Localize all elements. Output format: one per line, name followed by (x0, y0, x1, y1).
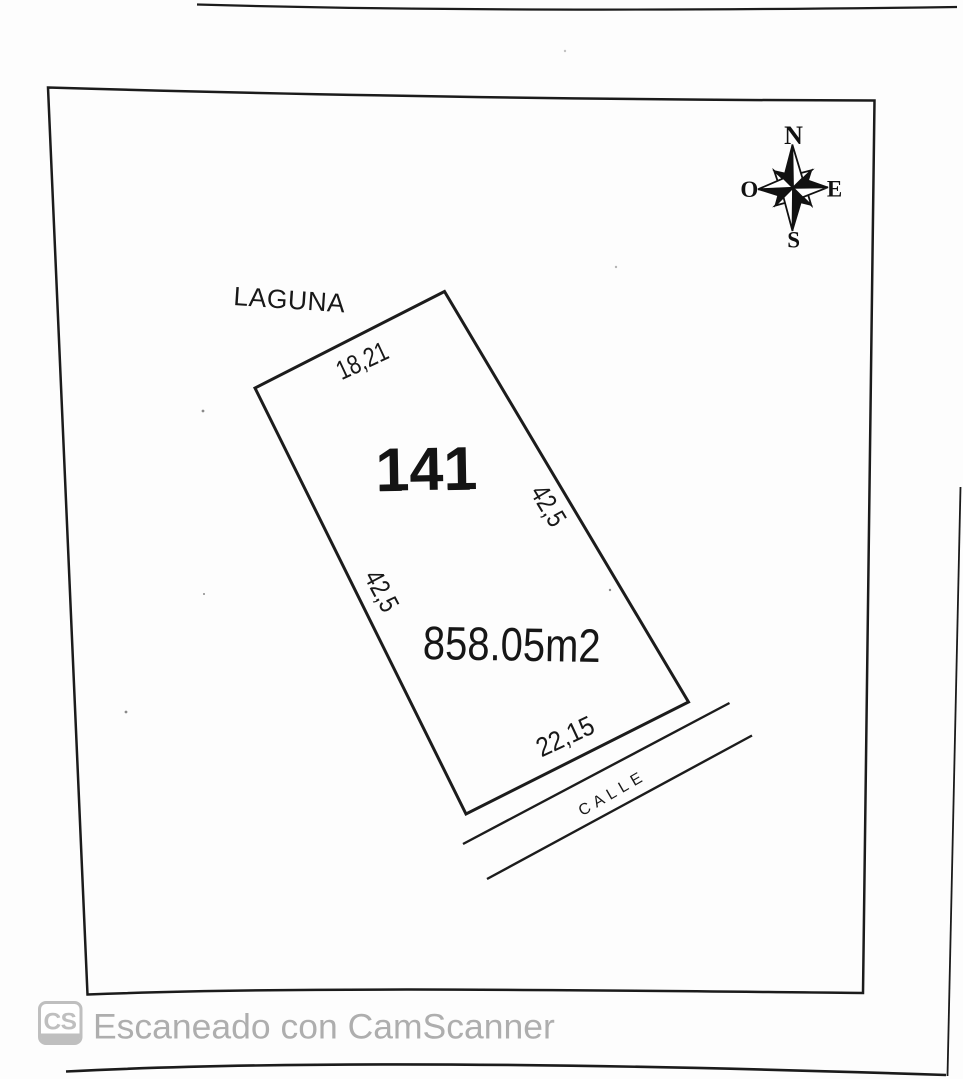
svg-text:22,15: 22,15 (532, 711, 600, 763)
svg-text:S: S (787, 227, 800, 252)
svg-text:Escaneado con CamScanner: Escaneado con CamScanner (93, 1007, 555, 1047)
svg-text:E: E (827, 176, 842, 201)
svg-text:141: 141 (375, 434, 478, 504)
svg-text:LAGUNA: LAGUNA (233, 281, 347, 318)
svg-text:858.05m2: 858.05m2 (422, 618, 601, 673)
svg-text:O: O (740, 177, 758, 202)
svg-text:N: N (784, 121, 803, 150)
svg-text:CS: CS (43, 1009, 76, 1036)
svg-text:42,5: 42,5 (524, 480, 573, 533)
